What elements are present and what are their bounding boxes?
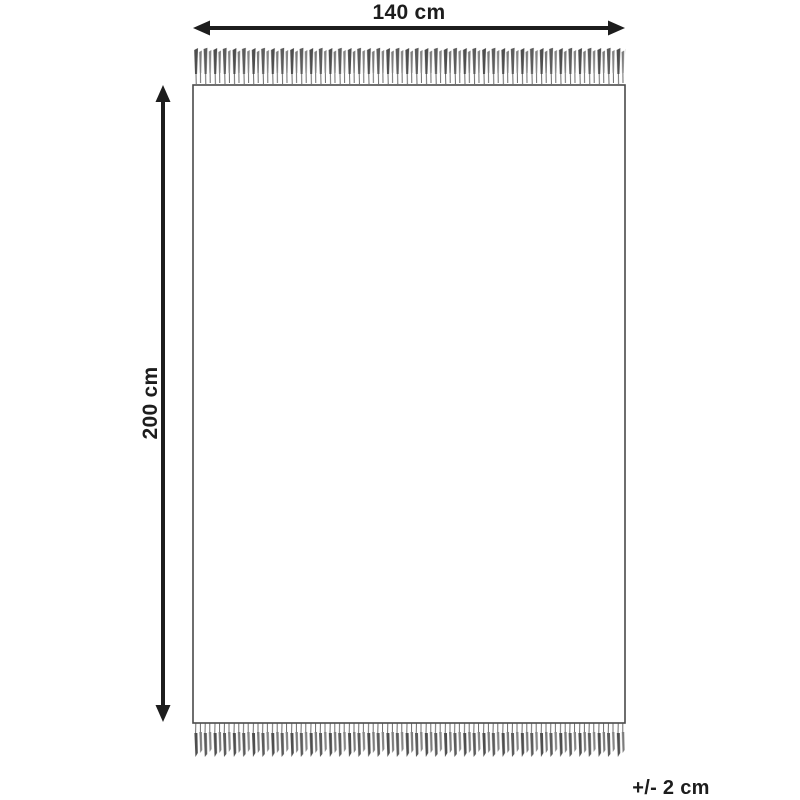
- width-dimension-label: 140 cm: [372, 1, 445, 24]
- bottom-fringe-icon: [193, 724, 626, 760]
- arrow-down-head-icon: [156, 705, 171, 722]
- arrow-up-head-icon: [156, 85, 171, 102]
- tolerance-label: +/- 2 cm: [632, 777, 709, 799]
- rug-dimension-diagram: 140 cm 200 cm +/- 2 cm: [0, 0, 800, 800]
- arrow-right-head-icon: [608, 21, 625, 36]
- height-dimension-label: 200 cm: [139, 366, 162, 439]
- top-fringe-icon: [193, 47, 626, 85]
- rug-outline: [193, 85, 625, 723]
- arrow-left-head-icon: [193, 21, 210, 36]
- diagram-svg: 140 cm 200 cm +/- 2 cm: [0, 0, 800, 800]
